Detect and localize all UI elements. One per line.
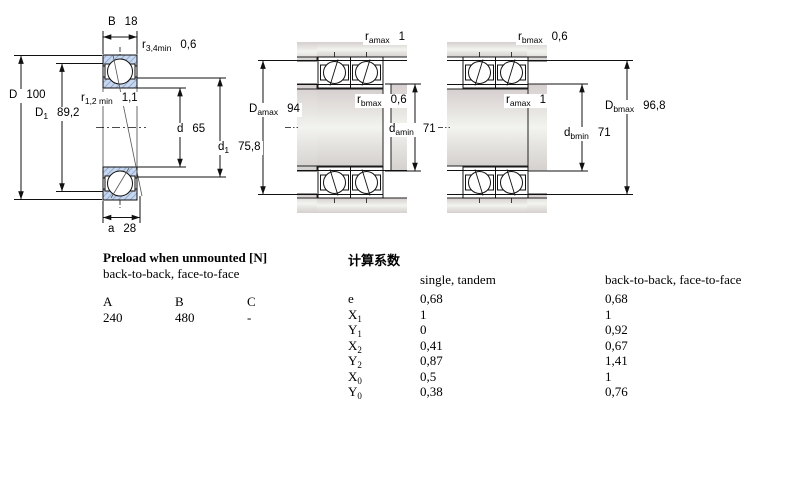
dim-value: 1 <box>399 31 405 43</box>
factor-label: Y0 <box>348 384 420 400</box>
dim-label-r34min: r3,4min0,6 <box>140 39 198 53</box>
preload-value-A: 240 <box>103 310 175 326</box>
factor-row-Y1: Y1 0 0,92 <box>348 322 741 338</box>
dim-label-d1: d175,8 <box>216 141 263 155</box>
dim-label-rbmax-right: rbmax0,6 <box>516 31 570 45</box>
bearing-pair-bottom <box>463 167 528 203</box>
dim-subscript: bmax <box>361 98 382 108</box>
preload-value-C: - <box>247 310 319 326</box>
factor-value-b2b: 0,76 <box>605 384 628 400</box>
dim-value: 100 <box>26 89 45 101</box>
dim-value: 1 <box>540 94 546 106</box>
dim-label-D1: D189,2 <box>33 107 81 121</box>
dim-label-D: D100 <box>7 89 48 103</box>
preload-title: Preload when unmounted [N] <box>103 250 319 265</box>
dim-label-r12min: r1,2 min1,1 <box>79 92 140 106</box>
dim-subscript: amin <box>395 127 413 137</box>
bearing-pair-bottom <box>318 167 383 203</box>
factor-label: Y2 <box>348 353 420 369</box>
factor-value-single: 0,41 <box>420 338 605 354</box>
preload-header-C: C <box>247 294 319 310</box>
dim-symbol: D <box>9 89 17 101</box>
dim-label-B: B18 <box>106 16 139 30</box>
factor-row-e: e 0,68 0,68 <box>348 291 741 307</box>
factors-table: single, tandem back-to-back, face-to-fac… <box>348 272 741 400</box>
preload-header-B: B <box>175 294 247 310</box>
factor-value-single: 0,87 <box>420 353 605 369</box>
dim-value: 75,8 <box>238 141 260 153</box>
factor-row-Y0: Y0 0,38 0,76 <box>348 384 741 400</box>
factors-col-header-b2b: back-to-back, face-to-face <box>605 272 741 288</box>
dim-subscript: 1,2 min <box>85 96 113 106</box>
dim-value: 96,8 <box>643 100 665 112</box>
dim-label-dbmin: dbmin71 <box>562 127 613 141</box>
factor-value-single: 0,5 <box>420 369 605 385</box>
factor-value-single: 0,68 <box>420 291 605 307</box>
dim-label-Dbmax: Dbmax96,8 <box>603 100 668 114</box>
factor-row-Y2: Y2 0,87 1,41 <box>348 353 741 369</box>
dim-value: 1,1 <box>122 92 138 104</box>
dim-subscript: bmax <box>613 104 634 114</box>
dim-subscript: amax <box>510 98 531 108</box>
dim-subscript: amax <box>257 107 278 117</box>
factor-row-X0: X0 0,5 1 <box>348 369 741 385</box>
dim-value: 28 <box>123 223 136 235</box>
factors-col-header-single: single, tandem <box>420 272 605 288</box>
factor-value-b2b: 1,41 <box>605 353 628 369</box>
preload-value-row: 240 480 - <box>103 310 319 326</box>
factor-label: X0 <box>348 369 420 385</box>
ball-top <box>108 59 133 84</box>
factor-label: Y1 <box>348 322 420 338</box>
factor-value-single: 1 <box>420 307 605 323</box>
factor-row-X2: X2 0,41 0,67 <box>348 338 741 354</box>
dim-value: 0,6 <box>552 31 568 43</box>
dim-value: 18 <box>125 16 138 28</box>
dim-value: 0,6 <box>180 39 196 51</box>
bearing-pair-top <box>318 52 383 88</box>
dim-subscript: bmax <box>522 35 543 45</box>
dim-subscript: bmin <box>570 131 588 141</box>
factor-value-b2b: 0,68 <box>605 291 628 307</box>
factor-value-single: 0,38 <box>420 384 605 400</box>
single-bearing-section-drawing <box>96 47 146 208</box>
dim-subscript: 1 <box>43 111 48 121</box>
factor-value-b2b: 1 <box>605 307 612 323</box>
dim-subscript: 1 <box>224 145 229 155</box>
bearing-spec-sheet: B18 r3,4min0,6 D100 D189,2 r1,2 min1,1 d… <box>0 0 800 500</box>
dim-label-ramax-right: ramax1 <box>504 94 548 108</box>
dim-symbol: a <box>108 223 114 235</box>
dim-label-a: a28 <box>106 223 138 237</box>
dim-subscript: amax <box>369 35 390 45</box>
factor-label: X1 <box>348 307 420 323</box>
dim-value: 94 <box>287 103 300 115</box>
factor-value-b2b: 1 <box>605 369 612 385</box>
dim-value: 65 <box>192 123 205 135</box>
dim-label-Damax: Damax94 <box>247 103 302 117</box>
factor-row-X1: X1 1 1 <box>348 307 741 323</box>
dim-subscript: 3,4min <box>146 43 172 53</box>
dim-symbol: d <box>177 123 183 135</box>
factor-value-b2b: 0,67 <box>605 338 628 354</box>
factors-header-row: single, tandem back-to-back, face-to-fac… <box>348 272 741 288</box>
factors-title: 计算系数 <box>348 250 400 269</box>
preload-header-A: A <box>103 294 175 310</box>
dim-value: 71 <box>423 123 436 135</box>
dim-label-d: d65 <box>175 123 207 137</box>
preload-table: Preload when unmounted [N] back-to-back,… <box>103 250 319 326</box>
factor-value-single: 0 <box>420 322 605 338</box>
dim-label-damin: damin71 <box>387 123 438 137</box>
dim-symbol: B <box>108 16 116 28</box>
preload-value-B: 480 <box>175 310 247 326</box>
preload-header-row: A B C <box>103 294 319 310</box>
dim-label-rbmax-mid: rbmax0,6 <box>355 94 409 108</box>
preload-subtitle: back-to-back, face-to-face <box>103 266 319 281</box>
dim-value: 0,6 <box>391 94 407 106</box>
dim-label-ramax-mid: ramax1 <box>363 31 407 45</box>
factor-value-b2b: 0,92 <box>605 322 628 338</box>
factor-label: X2 <box>348 338 420 354</box>
factor-label: e <box>348 291 420 307</box>
dim-value: 71 <box>598 127 611 139</box>
bearing-pair-top <box>463 52 528 88</box>
dim-value: 89,2 <box>57 107 79 119</box>
